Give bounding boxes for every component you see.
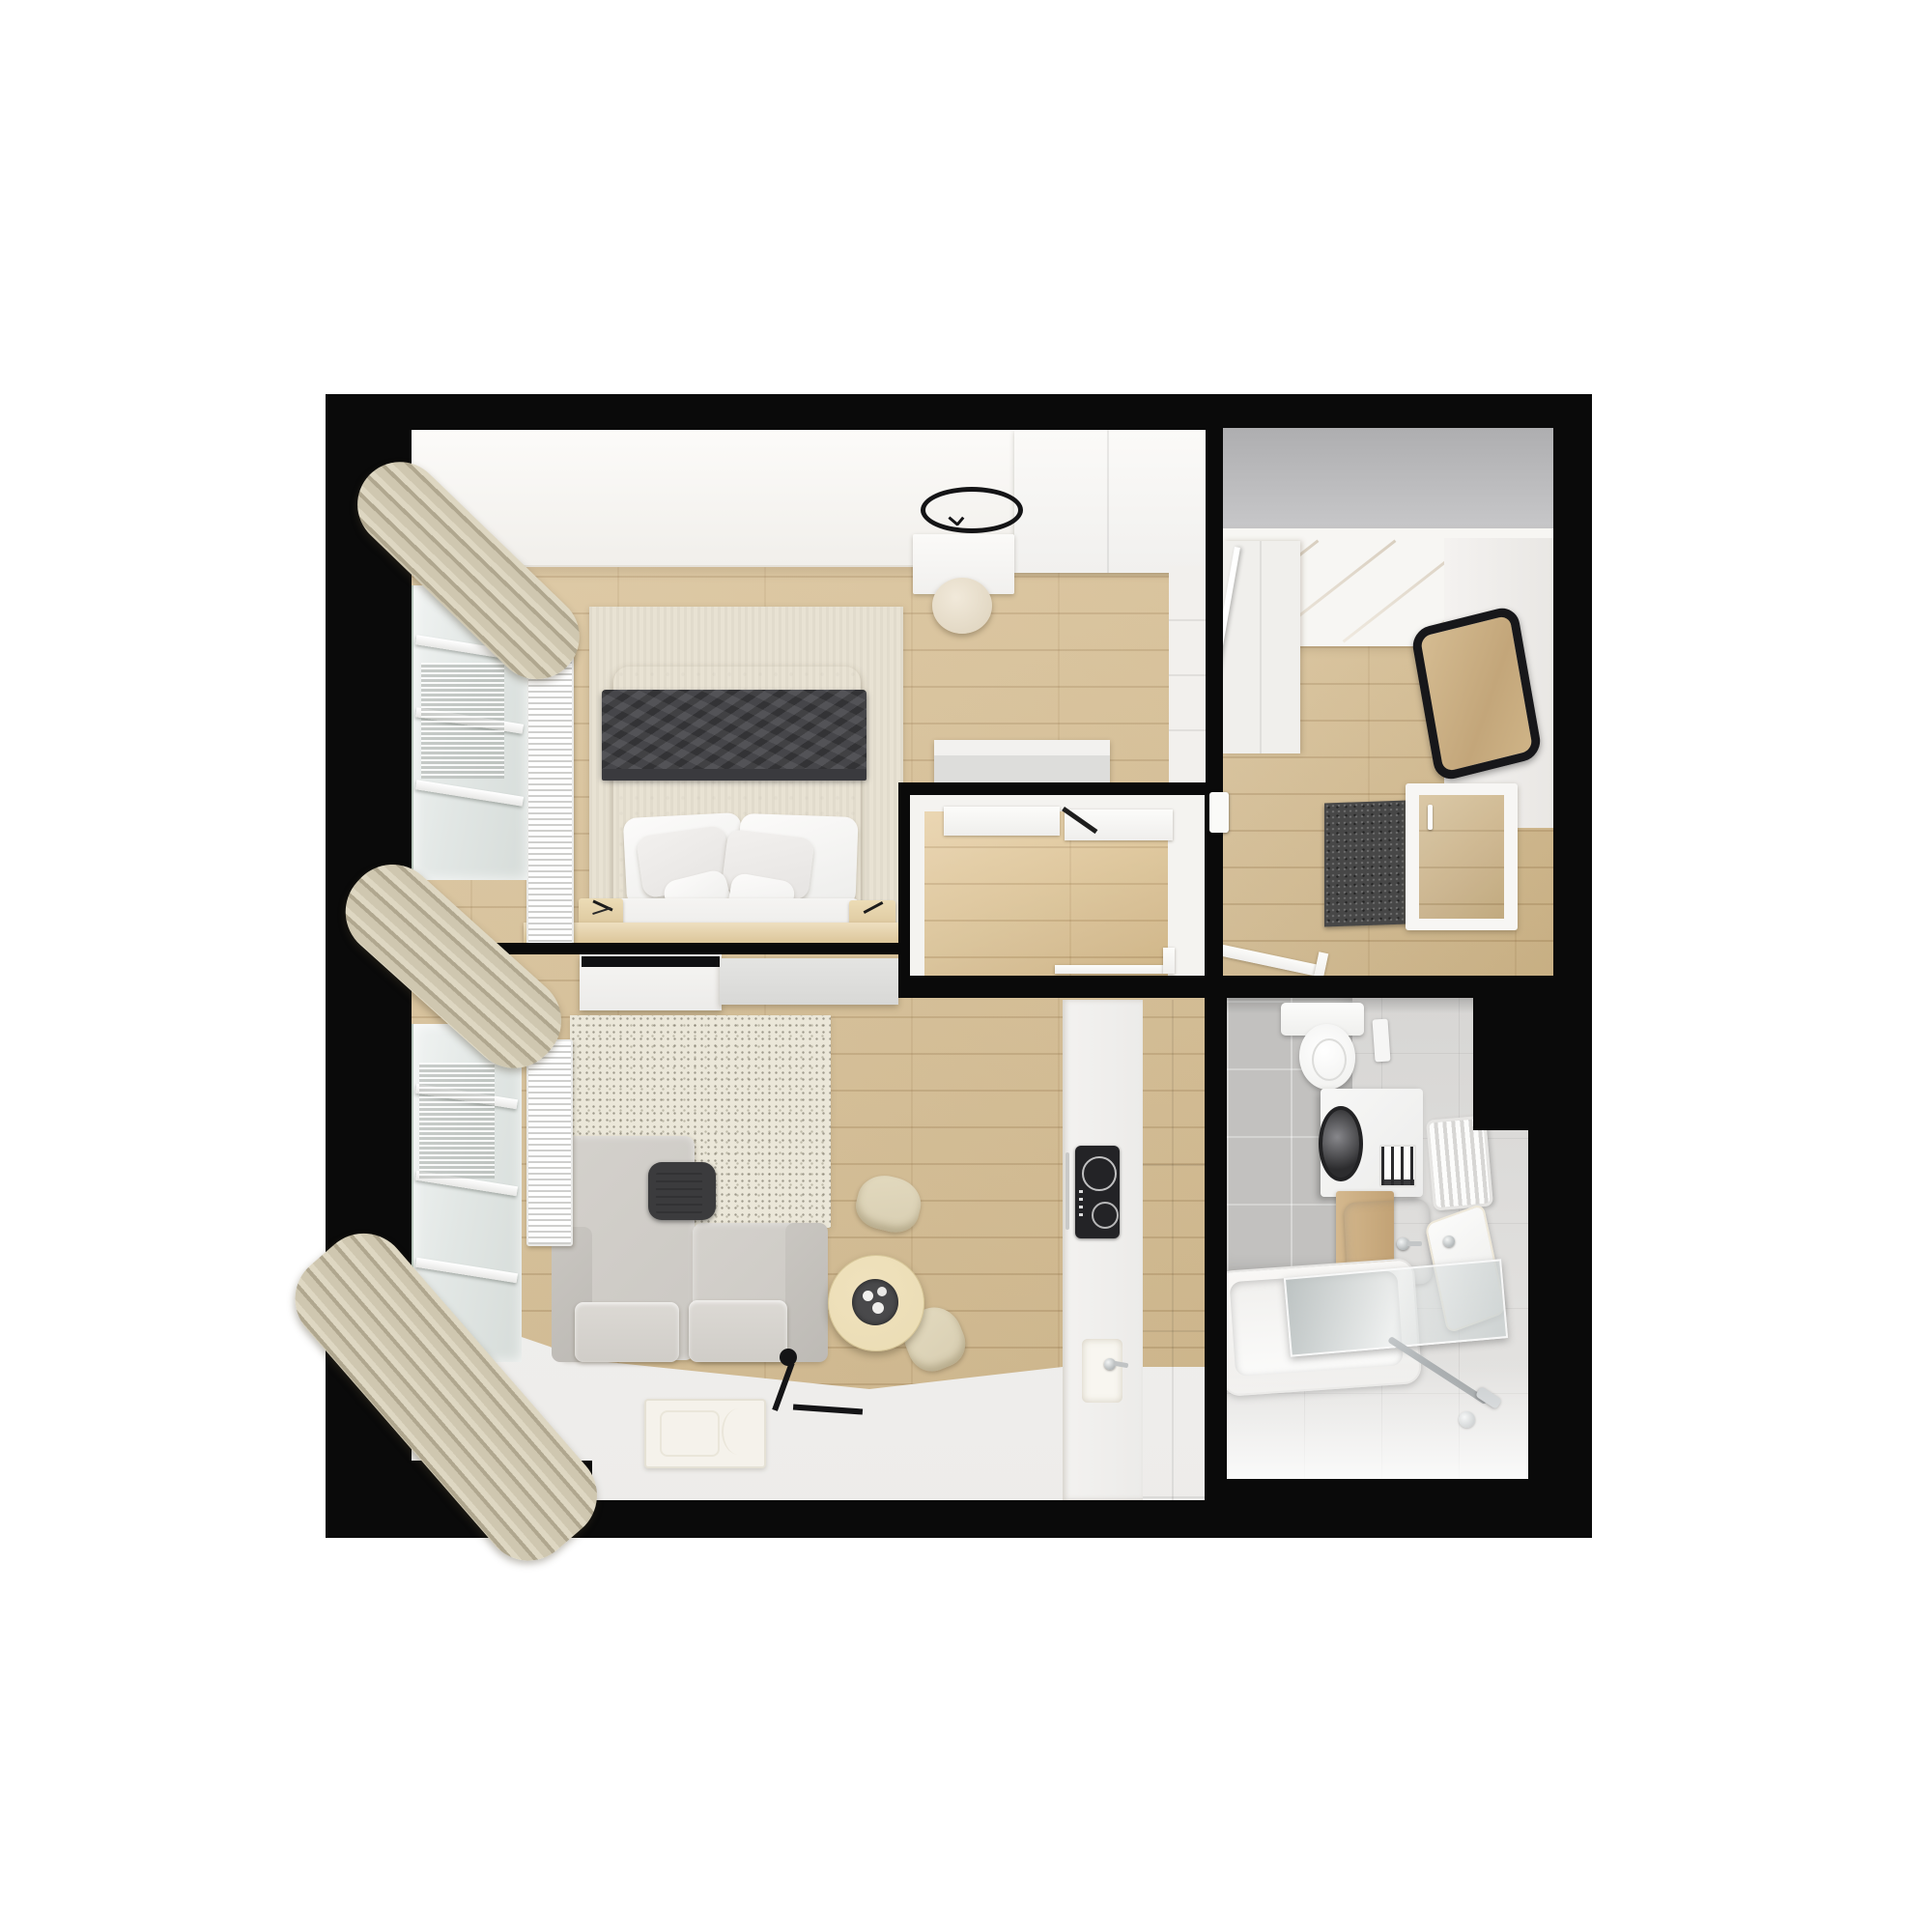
tray-cup	[872, 1302, 884, 1314]
room-bathroom	[1227, 998, 1528, 1479]
living-sideboard-gray	[720, 958, 898, 1005]
washbasin-faucet-handle	[1406, 1241, 1422, 1246]
cooktop-controls	[1079, 1190, 1083, 1217]
bedroom-wardrobe	[1014, 430, 1206, 573]
room-entry-hall	[1223, 428, 1553, 976]
towel-radiator	[1426, 1115, 1493, 1210]
washer-shelf-grill	[1379, 1145, 1416, 1187]
dining-chair-top	[851, 1170, 926, 1237]
bed-foot-bench	[524, 923, 898, 943]
toilet-bowl-inner	[1312, 1038, 1347, 1081]
entry-wardrobe	[1223, 541, 1300, 753]
corridor-door-frame-right	[1065, 810, 1173, 840]
sofa-seat-cushion-left	[575, 1302, 679, 1362]
mat-pattern-arc	[722, 1408, 756, 1455]
kitchen-sink	[1082, 1339, 1122, 1403]
window-mullion	[415, 1258, 518, 1283]
entry-doorway-trim-a	[1223, 944, 1317, 976]
ring-ceiling-lamp	[921, 487, 1023, 533]
tray-cup	[877, 1287, 887, 1296]
corridor-bottom-trim	[1055, 965, 1163, 974]
kitchen-counter-handle	[1065, 1152, 1069, 1230]
living-sideboard-slot	[582, 956, 720, 967]
bed-blanket-fold	[602, 769, 867, 781]
corridor-door-leaf	[1209, 792, 1229, 833]
window-mullion	[415, 780, 524, 806]
tray-cup	[863, 1291, 873, 1301]
entrance-door-handle	[1428, 805, 1433, 830]
window-blinds	[419, 1063, 495, 1179]
open-magazine	[656, 1173, 702, 1213]
mat-pattern	[660, 1410, 720, 1457]
bedroom-pouf	[932, 578, 992, 634]
room-corridor	[910, 795, 1205, 976]
floor-plan-canvas	[0, 0, 1932, 1932]
washer-porthole	[1319, 1106, 1363, 1181]
window-blinds	[421, 663, 504, 779]
entry-doormat	[1324, 800, 1407, 926]
bedroom-radiator	[526, 633, 574, 951]
bathroom-top-shadow	[1227, 998, 1528, 1013]
sofa-seat-cushion-right	[689, 1300, 787, 1362]
kitchen-tall-cabinets	[1143, 1000, 1205, 1500]
corridor-door-frame-left	[944, 807, 1060, 836]
cooktop-burner-large	[1082, 1156, 1117, 1191]
toilet-flush-plate	[1372, 1018, 1390, 1062]
entry-wardrobe-open-door	[1223, 547, 1240, 743]
living-radiator	[526, 1039, 573, 1246]
induction-cooktop	[1075, 1146, 1120, 1238]
kitchen-counter-white	[1063, 1000, 1143, 1500]
entry-wardrobe-seam	[1260, 541, 1262, 753]
white-floor-mat	[644, 1399, 766, 1468]
cooktop-burner-small	[1092, 1202, 1119, 1229]
bedroom-dresser	[934, 740, 1110, 784]
bed-blanket	[602, 690, 867, 779]
second-basin-faucet	[1443, 1236, 1455, 1247]
corridor-corner-trim	[1163, 948, 1175, 974]
bedroom-right-cabinet	[1169, 566, 1206, 784]
entry-gray-ceiling-band	[1223, 428, 1553, 528]
sofa-armrest-right	[785, 1223, 828, 1362]
bathroom-bottom-glow	[1227, 1365, 1528, 1479]
wardrobe-seam	[1107, 430, 1109, 573]
cabinet-seam	[1172, 1000, 1174, 1500]
apartment-floor-plan	[326, 394, 1592, 1538]
